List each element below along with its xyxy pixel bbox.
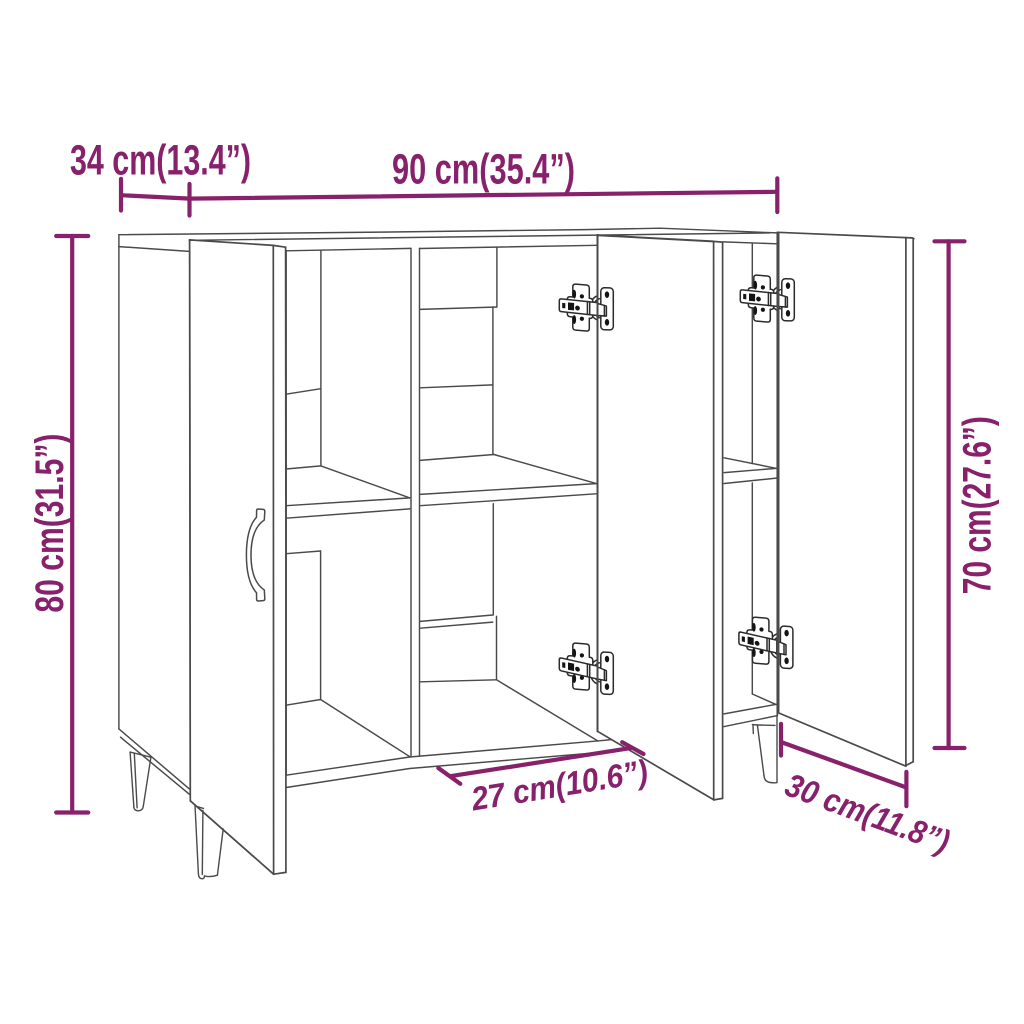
svg-text:34 cm(13.4”): 34 cm(13.4”) bbox=[70, 137, 251, 185]
svg-text:70 cm(27.6”): 70 cm(27.6”) bbox=[955, 416, 999, 594]
svg-text:90 cm(35.4”): 90 cm(35.4”) bbox=[392, 146, 575, 194]
svg-text:30 cm(11.8”): 30 cm(11.8”) bbox=[781, 766, 955, 860]
svg-text:27 cm(10.6”): 27 cm(10.6”) bbox=[468, 752, 651, 817]
svg-text:80 cm(31.5”): 80 cm(31.5”) bbox=[28, 434, 72, 613]
